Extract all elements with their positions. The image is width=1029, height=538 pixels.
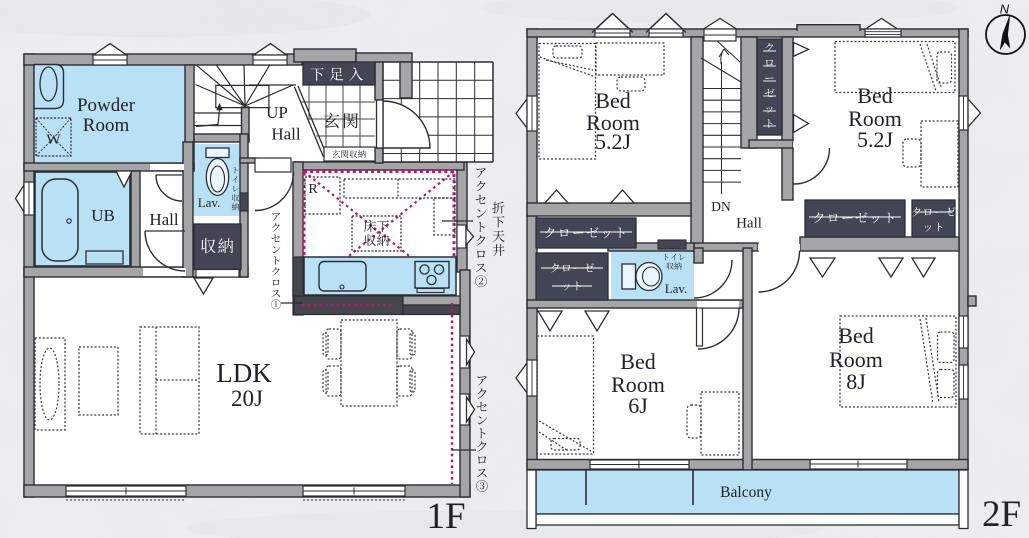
svg-text:LDK: LDK xyxy=(216,358,272,388)
svg-text:Lav.: Lav. xyxy=(665,281,688,296)
svg-text:UB: UB xyxy=(91,206,115,225)
svg-text:Bed: Bed xyxy=(620,349,655,374)
svg-text:5.2J: 5.2J xyxy=(595,129,632,154)
svg-text:W: W xyxy=(46,132,61,148)
svg-text:R: R xyxy=(308,182,318,197)
svg-text:Powder: Powder xyxy=(77,95,136,116)
svg-text:Hall: Hall xyxy=(736,216,762,232)
svg-text:Bed: Bed xyxy=(857,83,892,108)
svg-text:DN: DN xyxy=(711,199,731,214)
svg-text:6J: 6J xyxy=(628,393,648,418)
svg-text:1F: 1F xyxy=(426,496,465,537)
svg-text:Lav.: Lav. xyxy=(198,195,221,210)
svg-text:Bed: Bed xyxy=(838,323,873,348)
svg-text:2F: 2F xyxy=(982,494,1021,535)
svg-text:Hall: Hall xyxy=(149,210,179,229)
svg-text:5.2J: 5.2J xyxy=(857,127,894,152)
svg-text:8J: 8J xyxy=(846,369,866,394)
svg-text:20J: 20J xyxy=(231,386,263,411)
svg-text:Hall: Hall xyxy=(271,125,301,144)
svg-text:UP: UP xyxy=(266,103,288,122)
svg-text:Room: Room xyxy=(83,115,130,136)
svg-text:N: N xyxy=(1000,2,1010,17)
svg-text:Balcony: Balcony xyxy=(720,484,772,501)
